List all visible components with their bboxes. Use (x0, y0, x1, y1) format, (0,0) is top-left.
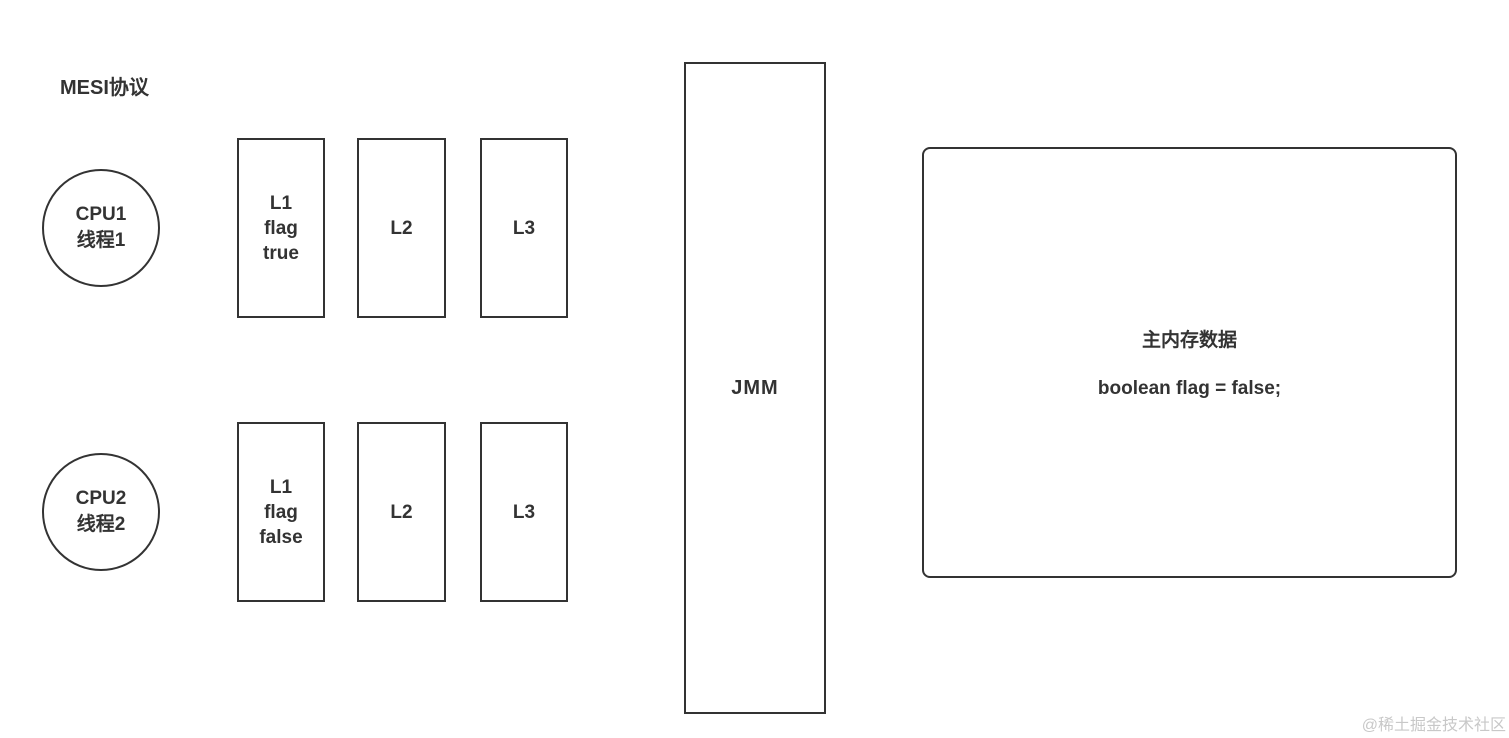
cpu2-l2-cache-box: L2 (357, 422, 446, 602)
cpu1-l1-line3: true (263, 241, 299, 266)
cpu2-l1-line1: L1 (270, 475, 292, 500)
cpu1-l1-line1: L1 (270, 191, 292, 216)
cpu2-l1-line3: false (259, 525, 302, 550)
cpu1-thread-label: 线程1 (77, 228, 126, 254)
cpu1-l3-label: L3 (513, 216, 535, 241)
cpu2-circle: CPU2 线程2 (42, 453, 160, 571)
jmm-label: JMM (731, 377, 778, 400)
cpu2-l2-label: L2 (390, 500, 412, 525)
cpu1-label: CPU1 (76, 202, 127, 228)
cpu2-label: CPU2 (76, 486, 127, 512)
cpu1-l1-cache-box: L1 flag true (237, 138, 325, 318)
cpu1-l2-cache-box: L2 (357, 138, 446, 318)
diagram-title: MESI协议 (60, 71, 149, 100)
cpu2-l3-cache-box: L3 (480, 422, 568, 602)
cpu1-l2-label: L2 (390, 216, 412, 241)
jmm-box: JMM (684, 62, 826, 714)
mesi-jmm-diagram: MESI协议 CPU1 线程1 CPU2 线程2 L1 flag true L2… (0, 0, 1509, 738)
watermark: @稀土掘金技术社区 (1362, 711, 1506, 735)
cpu2-l1-line2: flag (264, 500, 298, 525)
cpu1-l3-cache-box: L3 (480, 138, 568, 318)
cpu2-l1-cache-box: L1 flag false (237, 422, 325, 602)
cpu1-l1-line2: flag (264, 216, 298, 241)
cpu2-thread-label: 线程2 (77, 512, 126, 538)
main-memory-title: 主内存数据 (1142, 325, 1237, 352)
main-memory-box: 主内存数据 boolean flag = false; (922, 147, 1457, 578)
cpu1-circle: CPU1 线程1 (42, 169, 160, 287)
main-memory-code: boolean flag = false; (1098, 378, 1281, 400)
cpu2-l3-label: L3 (513, 500, 535, 525)
